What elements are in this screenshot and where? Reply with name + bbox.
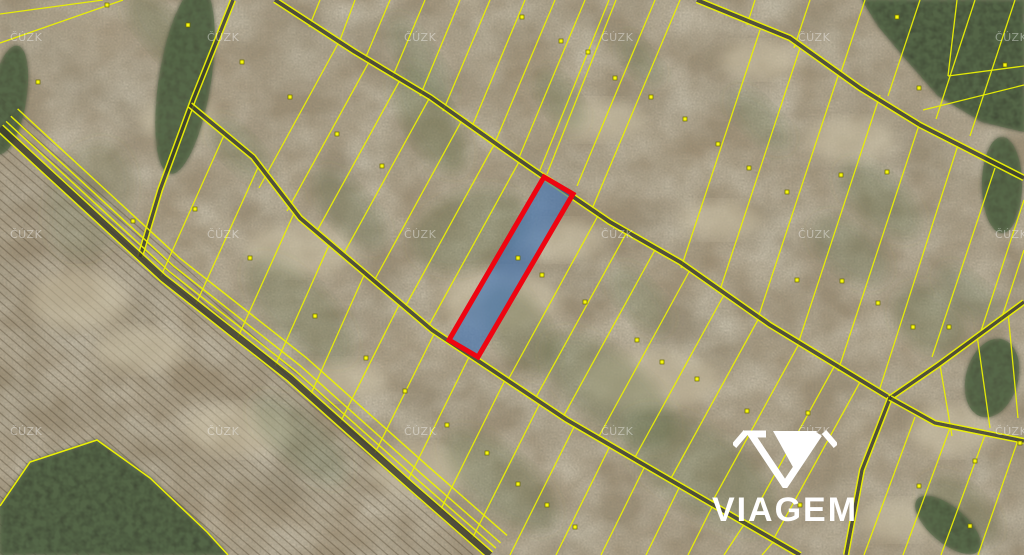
- parcel-marker-dot: [649, 95, 653, 99]
- parcel-marker-dot: [785, 190, 789, 194]
- parcel-marker-dot: [795, 278, 799, 282]
- watermark-text: ČÚZK: [601, 31, 634, 44]
- viagem-gem-icon: [733, 426, 837, 488]
- parcel-marker-dot: [745, 409, 749, 413]
- parcel-marker-dot: [747, 166, 751, 170]
- parcel-marker-dot: [911, 325, 915, 329]
- parcel-marker-dot: [380, 164, 384, 168]
- watermark-text: ČÚZK: [207, 31, 240, 44]
- parcel-marker-dot: [240, 60, 244, 64]
- parcel-marker-dot: [540, 273, 544, 277]
- parcel-marker-dot: [1018, 441, 1022, 445]
- parcel-marker-dot: [635, 338, 639, 342]
- parcel-marker-dot: [445, 423, 449, 427]
- parcel-marker-dot: [520, 15, 524, 19]
- parcel-marker-dot: [968, 524, 972, 528]
- parcel-marker-dot: [545, 503, 549, 507]
- parcel-marker-dot: [516, 482, 520, 486]
- parcel-marker-dot: [36, 80, 40, 84]
- parcel-marker-dot: [917, 484, 921, 488]
- parcel-marker-dot: [335, 132, 339, 136]
- parcel-marker-dot: [573, 525, 577, 529]
- parcel-marker-dot: [485, 451, 489, 455]
- sand-patch: [720, 42, 800, 78]
- watermark-text: ČÚZK: [207, 228, 240, 241]
- watermark-text: ČÚZK: [10, 31, 43, 44]
- watermark-text: ČÚZK: [601, 228, 634, 241]
- parcel-marker-dot: [586, 50, 590, 54]
- parcel-marker-dot: [248, 256, 252, 260]
- parcel-marker-dot: [131, 219, 135, 223]
- sand-patch: [805, 118, 895, 162]
- viagem-logo: VIAGEM: [694, 426, 876, 527]
- parcel-marker-dot: [876, 301, 880, 305]
- watermark-text: ČÚZK: [404, 31, 437, 44]
- watermark-text: ČÚZK: [207, 425, 240, 438]
- parcel-marker-dot: [895, 15, 899, 19]
- parcel-marker-dot: [947, 325, 951, 329]
- parcel-marker-dot: [683, 117, 687, 121]
- parcel-marker-dot: [403, 389, 407, 393]
- parcel-marker-dot: [613, 76, 617, 80]
- watermark-text: ČÚZK: [404, 228, 437, 241]
- map-viewport[interactable]: ČÚZKČÚZKČÚZKČÚZKČÚZKČÚZKČÚZKČÚZKČÚZKČÚZK…: [0, 0, 1024, 555]
- parcel-marker-dot: [917, 86, 921, 90]
- parcel-marker-dot: [885, 170, 889, 174]
- parcel-marker-dot: [583, 300, 587, 304]
- watermark-text: ČÚZK: [995, 425, 1024, 438]
- parcel-marker-dot: [193, 207, 197, 211]
- watermark-text: ČÚZK: [995, 31, 1024, 44]
- watermark-text: ČÚZK: [798, 228, 831, 241]
- parcel-marker-dot: [973, 459, 977, 463]
- parcel-marker-dot: [313, 314, 317, 318]
- parcel-marker-dot: [288, 95, 292, 99]
- watermark-text: ČÚZK: [601, 425, 634, 438]
- watermark-text: ČÚZK: [995, 228, 1024, 241]
- watermark-text: ČÚZK: [10, 228, 43, 241]
- parcel-marker-dot: [839, 173, 843, 177]
- parcel-marker-dot: [840, 279, 844, 283]
- viagem-logo-text: VIAGEM: [694, 493, 876, 527]
- parcel-marker-dot: [806, 411, 810, 415]
- sand-patch: [95, 328, 185, 372]
- watermark-text: ČÚZK: [404, 425, 437, 438]
- parcel-marker-dot: [660, 360, 664, 364]
- sand-patch: [30, 270, 130, 330]
- parcel-marker-dot: [105, 3, 109, 7]
- parcel-marker-dot: [1003, 63, 1007, 67]
- sand-patch: [680, 202, 760, 238]
- parcel-marker-dot: [364, 356, 368, 360]
- parcel-marker-dot: [559, 39, 563, 43]
- watermark-text: ČÚZK: [10, 425, 43, 438]
- parcel-marker-dot: [186, 23, 190, 27]
- parcel-marker-dot: [516, 256, 520, 260]
- parcel-marker-dot: [695, 377, 699, 381]
- parcel-marker-dot: [716, 142, 720, 146]
- watermark-text: ČÚZK: [798, 31, 831, 44]
